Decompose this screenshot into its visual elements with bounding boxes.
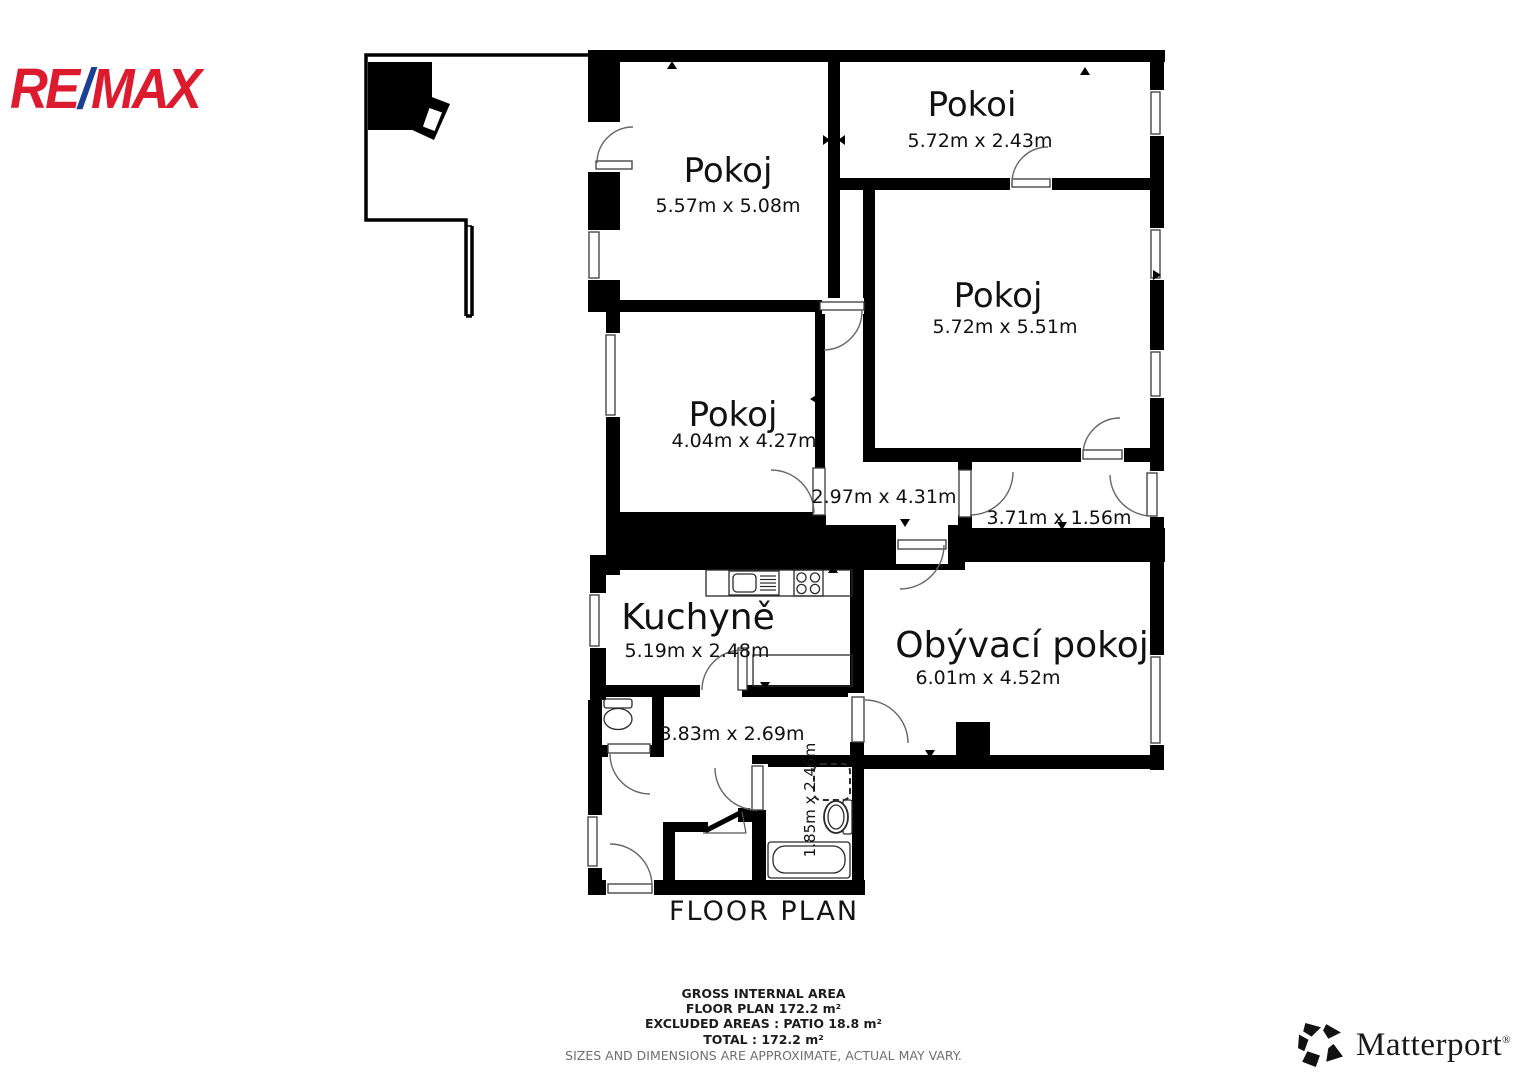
door	[852, 697, 908, 743]
room-label: Pokoj	[689, 395, 778, 435]
floor-plan-area: FLOOR PLAN 172.2 m²	[0, 1001, 1527, 1016]
registered-mark: ®	[1502, 1034, 1511, 1046]
door	[1083, 418, 1122, 459]
door	[608, 744, 650, 794]
room-dims: 5.57m x 5.08m	[656, 195, 801, 217]
room-dims: 4.04m x 4.27m	[672, 430, 817, 452]
room-dims: 5.19m x 2.48m	[625, 640, 770, 662]
window	[1148, 228, 1166, 280]
toilet-icon	[824, 800, 852, 834]
kitchen-counter	[706, 570, 852, 596]
area-dims: 3.71m x 1.56m	[987, 507, 1132, 529]
room-label: Kuchyně	[621, 597, 775, 638]
door	[1012, 147, 1050, 187]
window	[584, 230, 624, 280]
room-label: Pokoj	[684, 151, 773, 191]
walls	[588, 50, 1165, 895]
area-dims: 2.97m x 4.31m	[812, 486, 957, 508]
room-dims: 6.01m x 4.52m	[916, 667, 1061, 689]
window	[1148, 350, 1166, 398]
room-dims: 5.72m x 2.43m	[908, 130, 1053, 152]
patio-structure	[368, 62, 450, 140]
gross-internal-area-label: GROSS INTERNAL AREA	[0, 986, 1527, 1001]
window	[1148, 90, 1166, 136]
floorplan-drawing: Pokoj 5.57m x 5.08m Pokoi 5.72m x 2.43m …	[0, 0, 1527, 1080]
matterport-icon	[1298, 1022, 1344, 1068]
room-labels: Pokoj 5.57m x 5.08m Pokoi 5.72m x 2.43m …	[621, 85, 1149, 857]
window	[602, 333, 622, 417]
wc-toilet-icon	[604, 699, 632, 730]
window	[584, 815, 604, 868]
room-dims: 5.72m x 5.51m	[933, 316, 1078, 338]
area-dims: 1.85m x 2.46m	[801, 743, 819, 857]
floorplan-page: RE/MAX	[0, 0, 1527, 1080]
room-label: Pokoi	[928, 85, 1017, 125]
pillar	[956, 722, 990, 756]
matterport-logo: Matterport®	[1298, 1022, 1511, 1068]
window	[1148, 655, 1166, 745]
shower-icon	[814, 764, 850, 800]
door-open-leaf	[703, 812, 746, 833]
room-label: Obývací pokoj	[895, 625, 1149, 666]
room-label: Pokoj	[954, 276, 1043, 316]
window	[586, 593, 606, 648]
matterport-wordmark: Matterport®	[1356, 1027, 1511, 1064]
plan-title: FLOOR PLAN	[669, 896, 859, 927]
stove-icon	[794, 570, 823, 596]
door	[608, 844, 652, 893]
door	[820, 302, 864, 350]
sink-icon	[729, 571, 779, 595]
door	[715, 766, 763, 810]
area-dims: 3.83m x 2.69m	[660, 723, 805, 745]
